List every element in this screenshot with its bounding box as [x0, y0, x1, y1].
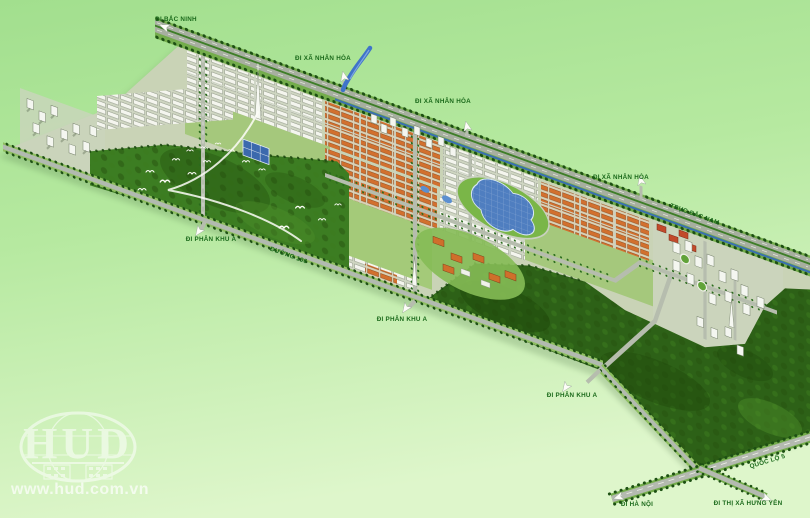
- hud-logo-text: HUD: [23, 419, 133, 468]
- label-di-ha-noi: ĐI HÀ NỘI: [621, 499, 653, 508]
- masterplan-image: ĐI BẮC NINH ĐI XÃ NHÂN HÒA ĐI XÃ NHÂN HÒ…: [0, 0, 810, 518]
- hud-website-text: www.hud.com.vn: [10, 481, 149, 498]
- label-di-bac-ninh: ĐI BẮC NINH: [155, 14, 197, 23]
- label-di-xa-nhan-hoa-3: ĐI XÃ NHÂN HÒA: [593, 172, 649, 181]
- label-di-xa-nhan-hoa-2: ĐI XÃ NHÂN HÒA: [415, 96, 471, 105]
- hud-watermark: HUD www.hud.com.vn: [10, 413, 149, 498]
- label-di-phan-khu-a-1: ĐI PHÂN KHU A: [186, 234, 237, 243]
- masterplan-svg: ĐI BẮC NINH ĐI XÃ NHÂN HÒA ĐI XÃ NHÂN HÒ…: [0, 0, 810, 518]
- label-di-thi-xa-hung-yen: ĐI THỊ XÃ HƯNG YÊN: [714, 498, 783, 507]
- label-di-phan-khu-a-3: ĐI PHÂN KHU A: [547, 390, 598, 399]
- label-di-xa-nhan-hoa-1: ĐI XÃ NHÂN HÒA: [295, 53, 351, 62]
- label-di-phan-khu-a-2: ĐI PHÂN KHU A: [377, 314, 428, 323]
